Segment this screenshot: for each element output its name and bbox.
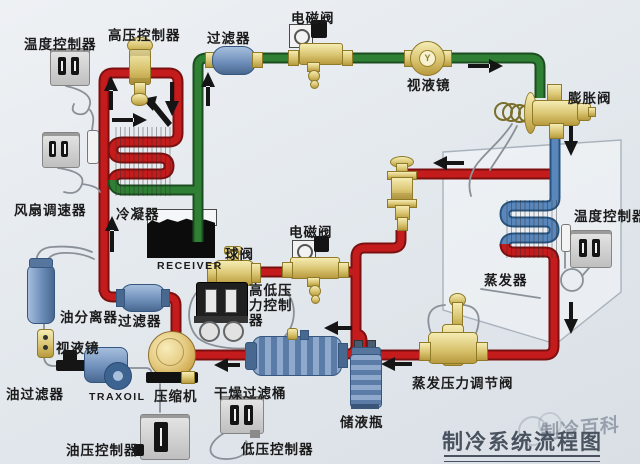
label-high-low-pressure-controller: 高低压力控制器 [249, 283, 293, 328]
pipe-collar [419, 342, 431, 361]
valve-cap [131, 93, 148, 106]
fan-speed-controller [42, 132, 80, 168]
label-expansion-valve: 膨胀阀 [568, 87, 612, 107]
controller-contact [61, 141, 68, 157]
label-oil-filter: 油过滤器 [6, 383, 64, 403]
pipe-collar [288, 50, 299, 66]
filter-top-body [212, 46, 256, 75]
high-pressure-controller-body [129, 49, 151, 85]
txv-bottom-port [549, 123, 564, 139]
liquid-bottle-rim [351, 404, 379, 409]
filter-mid-cap [116, 289, 125, 307]
sight-glass-left-body [37, 329, 54, 358]
compressor-port [181, 371, 195, 384]
label-compressor: 压缩机 [154, 385, 198, 405]
label-sight-glass-top: 视液镜 [407, 74, 451, 94]
oil-filter-body [56, 360, 86, 371]
label-filter-top: 过滤器 [207, 27, 251, 47]
pipe-collar [342, 50, 353, 66]
epr-valve-body [428, 332, 478, 364]
label-receiver: RECEIVER [157, 260, 223, 272]
label-evaporator: 蒸发器 [484, 269, 528, 289]
solenoid-mid-body [290, 257, 340, 279]
label-liquid-bottle: 储液瓶 [340, 411, 384, 431]
sensor-bulb [561, 224, 571, 252]
pipe-collar [251, 263, 261, 283]
drying-filter-body [252, 336, 342, 376]
label-fan-speed-controller: 风扇调速器 [14, 199, 87, 219]
filter-mid-cap [161, 289, 170, 307]
controller-contact [579, 239, 587, 257]
sensor-bulb [87, 130, 99, 164]
hot-gas-valve-port [397, 217, 408, 231]
label-ball-valve: 球阀 [225, 243, 254, 263]
title-underline [444, 455, 600, 462]
diagram-title: 制冷系统流程图 [442, 426, 603, 456]
label-sight-glass-left: 视液镜 [56, 337, 100, 357]
pressure-gauge [223, 321, 244, 342]
temperature-controller-right [570, 230, 612, 268]
solenoid-mid-knob [311, 295, 320, 304]
label-solenoid-valve-top: 电磁阀 [291, 7, 335, 27]
label-oil-pressure-controller: 油压控制器 [66, 439, 139, 459]
refrigeration-flow-diagram: Y [0, 0, 640, 464]
pressure-gauge [199, 321, 220, 342]
label-condenser: 冷凝器 [116, 203, 160, 223]
drying-filter-cap [245, 342, 257, 370]
temperature-controller-left [50, 48, 90, 86]
label-temperature-controller-right: 温度控制器 [574, 205, 640, 225]
filter-mid-body [120, 284, 166, 312]
lp-controller-foot [250, 430, 260, 438]
pipe-collar [338, 262, 349, 278]
drying-filter-knob [287, 328, 298, 340]
label-temperature-controller-left: 温度控制器 [24, 33, 97, 53]
label-epr-valve: 蒸发压力调节阀 [412, 372, 514, 392]
controller-contact [49, 141, 56, 157]
filter-top-fitting [252, 52, 263, 68]
drying-filter-cap [338, 343, 348, 368]
controller-contact [230, 405, 239, 425]
label-high-pressure-controller: 高压控制器 [108, 24, 181, 44]
label-filter-mid: 过滤器 [118, 310, 162, 330]
label-traxoil: TRAXOIL [89, 391, 146, 403]
controller-contact [58, 57, 66, 75]
pipe-collar [476, 342, 488, 361]
sight-glass-lens: Y [419, 50, 436, 67]
txv-nipple [588, 107, 596, 117]
label-solenoid-valve-mid: 电磁阀 [289, 221, 333, 241]
label-drying-filter: 干燥过滤桶 [214, 382, 287, 402]
oil-separator-body [27, 264, 55, 324]
oil-pressure-controller [140, 414, 190, 460]
compressor-inner [156, 338, 184, 366]
controller-contact [244, 405, 253, 425]
sight-glass-top-body: Y [410, 41, 445, 76]
pipe-collar [282, 262, 293, 278]
controller-contact [154, 422, 168, 452]
high-low-pressure-controller [196, 282, 248, 320]
label-low-pressure-controller: 低压控制器 [241, 438, 314, 458]
controller-base [194, 316, 248, 323]
oil-separator-cap [29, 258, 53, 268]
solenoid-top-body [299, 43, 343, 65]
label-oil-separator: 油分离器 [60, 306, 118, 326]
drying-filter-knob [300, 330, 309, 340]
liquid-bottle-body [350, 354, 382, 408]
controller-contact [592, 239, 600, 257]
solenoid-top-knob [310, 80, 319, 89]
controller-contact [71, 57, 79, 75]
traxoil-wheel [104, 362, 132, 390]
